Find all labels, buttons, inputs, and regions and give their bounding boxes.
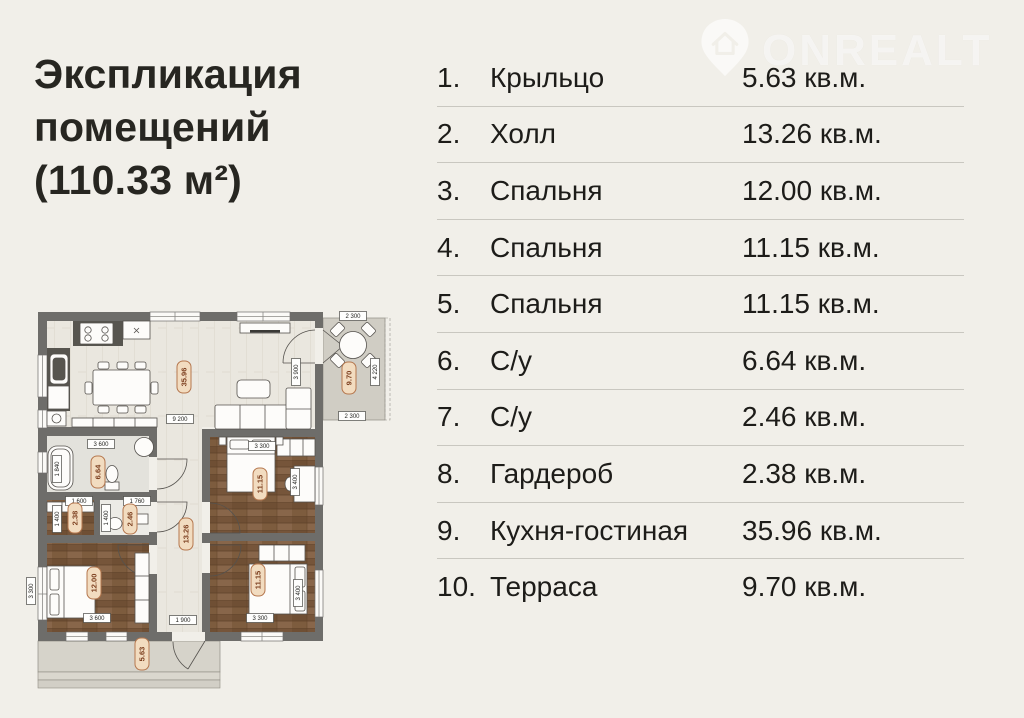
- svg-text:11.15: 11.15: [254, 571, 263, 589]
- page-title: Экспликация помещений (110.33 м²): [34, 48, 302, 207]
- porch-step-2: [38, 680, 220, 688]
- svg-text:1 900: 1 900: [175, 618, 191, 624]
- room-area: 12.00 кв.м.: [742, 175, 964, 207]
- rooms-table: 1.Крыльцо5.63 кв.м. 2.Холл13.26 кв.м. 3.…: [437, 50, 964, 615]
- svg-text:2 300: 2 300: [345, 314, 361, 320]
- row-number: 5.: [437, 288, 490, 320]
- svg-text:1 400: 1 400: [55, 511, 61, 527]
- badge-wardrobe: 2.38: [68, 503, 82, 533]
- dishwasher: [48, 386, 69, 409]
- badge-hall: 13.26: [179, 518, 193, 550]
- row-number: 6.: [437, 345, 490, 377]
- badge-bedroom1: 12.00: [87, 567, 101, 599]
- dim-bedroom2-width: 3 300: [249, 442, 276, 451]
- svg-text:9 200: 9 200: [172, 417, 188, 423]
- porch-floor: [38, 641, 220, 672]
- room-area: 2.46 кв.м.: [742, 401, 964, 433]
- svg-text:2.38: 2.38: [71, 511, 80, 526]
- row-number: 4.: [437, 232, 490, 264]
- svg-text:3 300: 3 300: [29, 583, 35, 599]
- svg-text:4 220: 4 220: [373, 364, 379, 380]
- kitchen-cabinets: [72, 418, 157, 427]
- porch-step-1: [38, 672, 220, 680]
- row-number: 8.: [437, 458, 490, 490]
- room-name: Гардероб: [490, 458, 742, 490]
- dim-bedroom1-height: 3 300: [27, 578, 36, 605]
- svg-text:3 600: 3 600: [89, 616, 105, 622]
- room-area: 6.64 кв.м.: [742, 345, 964, 377]
- dim-bedroom3-height: 3 400: [294, 580, 303, 607]
- dim-bedroom1-width: 3 600: [84, 614, 111, 623]
- svg-text:13.26: 13.26: [182, 525, 191, 544]
- table-row: 6.С/у6.64 кв.м.: [437, 333, 964, 390]
- title-line-1: Экспликация: [34, 48, 302, 101]
- room-name: С/у: [490, 345, 742, 377]
- dim-wardrobe-height: 1 400: [53, 506, 62, 533]
- room-name: Крыльцо: [490, 62, 742, 94]
- svg-text:2 300: 2 300: [344, 414, 360, 420]
- svg-text:35.96: 35.96: [180, 368, 189, 387]
- toilet-1: [105, 466, 119, 491]
- svg-text:3 900: 3 900: [294, 364, 300, 380]
- washing-machine: [47, 411, 66, 426]
- svg-text:12.00: 12.00: [90, 574, 99, 593]
- dim-terrace-height: 4 220: [371, 359, 380, 386]
- row-number: 2.: [437, 118, 490, 150]
- svg-text:3 300: 3 300: [254, 444, 270, 450]
- svg-text:1 840: 1 840: [55, 461, 61, 477]
- table-row: 1.Крыльцо5.63 кв.м.: [437, 50, 964, 107]
- dim-bath-height: 1 840: [53, 456, 62, 483]
- room-name: Спальня: [490, 232, 742, 264]
- table-row: 4.Спальня11.15 кв.м.: [437, 220, 964, 277]
- room-name: Спальня: [490, 288, 742, 320]
- dining-table: [85, 362, 158, 413]
- dim-bedroom3-width: 3 300: [247, 614, 274, 623]
- badge-bedroom2: 11.15: [253, 468, 267, 500]
- room-area: 11.15 кв.м.: [742, 288, 964, 320]
- dim-kitchen-width: 9 200: [167, 415, 194, 424]
- svg-text:1 400: 1 400: [104, 510, 110, 526]
- dim-terrace-top: 2 300: [340, 312, 367, 321]
- svg-text:6.64: 6.64: [94, 464, 103, 479]
- svg-text:2.46: 2.46: [126, 512, 135, 527]
- badge-bedroom3: 11.15: [251, 564, 265, 596]
- badge-bath: 6.64: [91, 456, 105, 488]
- row-number: 7.: [437, 401, 490, 433]
- dim-bath-width: 3 600: [88, 440, 115, 449]
- table-row: 3.Спальня12.00 кв.м.: [437, 163, 964, 220]
- row-number: 1.: [437, 62, 490, 94]
- room-name: Терраса: [490, 571, 742, 603]
- badge-terrace: 9.70: [342, 362, 356, 394]
- room-name: Кухня-гостиная: [490, 515, 742, 547]
- title-line-2: помещений: [34, 101, 302, 154]
- row-number: 3.: [437, 175, 490, 207]
- table-row: 9.Кухня-гостиная35.96 кв.м.: [437, 503, 964, 560]
- room-area: 2.38 кв.м.: [742, 458, 964, 490]
- badge-su: 2.46: [123, 504, 137, 534]
- room-name: Холл: [490, 118, 742, 150]
- room-area: 5.63 кв.м.: [742, 62, 964, 94]
- svg-text:9.70: 9.70: [345, 371, 354, 386]
- dim-living-height: 3 900: [292, 359, 301, 386]
- dim-hall-width: 1 900: [170, 616, 197, 625]
- badge-porch: 5.63: [135, 638, 149, 670]
- room-name: С/у: [490, 401, 742, 433]
- table-row: 2.Холл13.26 кв.м.: [437, 107, 964, 164]
- dim-su-height: 1 400: [102, 505, 111, 532]
- dim-terrace-bottom: 2 300: [339, 412, 366, 421]
- table-row: 5.Спальня11.15 кв.м.: [437, 276, 964, 333]
- svg-text:11.15: 11.15: [256, 475, 265, 493]
- room-area: 35.96 кв.м.: [742, 515, 964, 547]
- svg-text:3 300: 3 300: [252, 616, 268, 622]
- table-row: 10.Терраса9.70 кв.м.: [437, 559, 964, 615]
- floor-plan: 9 200 3 900 3 600 1 840 1 600 1 400 1 76…: [22, 306, 412, 710]
- room-area: 13.26 кв.м.: [742, 118, 964, 150]
- row-number: 9.: [437, 515, 490, 547]
- tv-unit: [240, 323, 290, 333]
- room-name: Спальня: [490, 175, 742, 207]
- explication-page: { "title": {"line1": "Экспликация", "lin…: [0, 0, 1024, 718]
- round-table: [340, 332, 367, 359]
- room-area: 9.70 кв.м.: [742, 571, 964, 603]
- coffee-table: [237, 380, 270, 398]
- table-row: 8.Гардероб2.38 кв.м.: [437, 446, 964, 503]
- svg-text:3 600: 3 600: [93, 442, 109, 448]
- svg-text:3 400: 3 400: [296, 585, 302, 601]
- dim-bedroom2-height: 3 400: [291, 469, 300, 496]
- room-area: 11.15 кв.м.: [742, 232, 964, 264]
- title-line-3: (110.33 м²): [34, 154, 302, 207]
- row-number: 10.: [437, 571, 490, 603]
- svg-text:3 400: 3 400: [293, 474, 299, 490]
- svg-text:5.63: 5.63: [138, 647, 147, 662]
- table-row: 7.С/у2.46 кв.м.: [437, 390, 964, 447]
- washbasin: [135, 438, 154, 457]
- badge-kitchen: 35.96: [177, 361, 191, 393]
- stove: [80, 323, 113, 344]
